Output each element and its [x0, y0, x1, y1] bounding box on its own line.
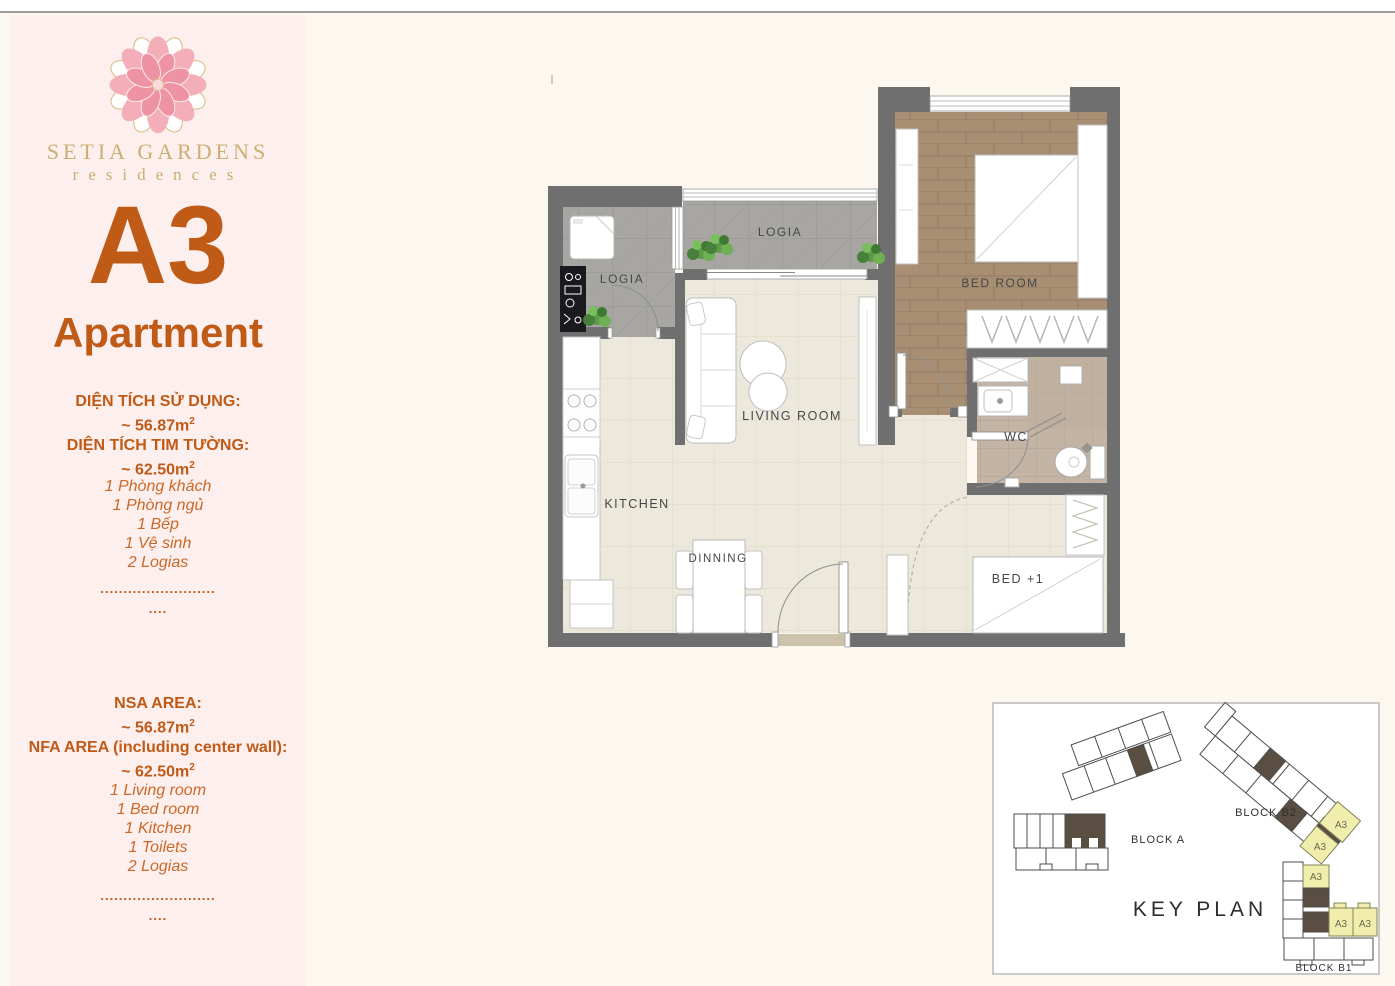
vn-feature-item: 1 Phòng khách [10, 477, 306, 496]
vn-feature-item: 1 Vệ sinh [10, 534, 306, 553]
room-label-living: LIVING ROOM [742, 409, 842, 423]
dresser-icon [896, 129, 918, 264]
en-area-value-2: ~ 62.50m2 [10, 758, 306, 782]
vn-divider-dots: ......................... [10, 581, 306, 596]
en-feature-item: 1 Living room [10, 781, 306, 800]
brand-subtitle: residences [10, 165, 306, 185]
dark-unit [1303, 912, 1329, 932]
room-label-bed-plus-one: BED +1 [992, 572, 1044, 586]
vn-area-heading-1: DIỆN TÍCH SỬ DỤNG: [10, 392, 306, 412]
vn-area-block: DIỆN TÍCH SỬ DỤNG: ~ 56.87m2 DIỆN TÍCH T… [10, 392, 306, 481]
logia-railing [683, 189, 877, 201]
vn-feature-item: 2 Logias [10, 553, 306, 572]
sliding-panel-icon [887, 555, 908, 635]
toilet-icon [1090, 446, 1105, 479]
sidebar: SETIA GARDENS residences A3 Apartment DI… [10, 15, 306, 986]
room-label-logia-top: LOGIA [758, 225, 802, 239]
top-strip [0, 0, 1395, 13]
key-plan-title: KEY PLAN [1133, 898, 1267, 921]
vn-feature-item: 1 Phòng ngủ [10, 496, 306, 515]
en-feature-item: 2 Logias [10, 857, 306, 876]
en-feature-list: 1 Living room 1 Bed room 1 Kitchen 1 Toi… [10, 781, 306, 876]
wardrobe-icon [967, 310, 1107, 348]
shower-icon [1060, 366, 1082, 384]
room-label-dinning: DINNING [688, 553, 747, 565]
entry-threshold [778, 634, 845, 646]
chair-icon [745, 595, 762, 633]
brand-logo-flower-icon [10, 27, 306, 144]
bedroom-window [930, 96, 1070, 111]
apartment-type-label: Apartment [10, 309, 306, 357]
chair-icon [745, 551, 762, 589]
dark-unit [1303, 888, 1329, 907]
unit-a3-label: A3 [1335, 820, 1348, 831]
en-area-heading-1: NSA AREA: [10, 694, 306, 714]
en-feature-item: 1 Kitchen [10, 819, 306, 838]
unit-a3-label: A3 [1359, 919, 1372, 930]
chair-icon [676, 595, 693, 633]
block-b2-label: BLOCK B2 [1235, 807, 1297, 819]
bedroom-door-leaf [897, 353, 906, 409]
vn-area-heading-2: DIỆN TÍCH TIM TƯỜNG: [10, 436, 306, 456]
unit-a3-label: A3 [1310, 872, 1323, 883]
bedside-cabinet-icon [1078, 125, 1107, 298]
stove-icon [563, 389, 600, 437]
en-area-heading-2: NFA AREA (including center wall): [10, 738, 306, 758]
dark-unit [1065, 814, 1105, 848]
vn-feature-list: 1 Phòng khách 1 Phòng ngủ 1 Bếp 1 Vệ sin… [10, 477, 306, 572]
en-area-value-1: ~ 56.87m2 [10, 714, 306, 738]
unit-a3-label: A3 [1335, 919, 1348, 930]
room-label-bedroom: BED ROOM [961, 276, 1038, 290]
block-b1-label: BLOCK B1 [1296, 963, 1353, 974]
en-area-block: NSA AREA: ~ 56.87m2 NFA AREA (including … [10, 694, 306, 783]
floor-plan: LOGIA LOGIA BED ROOM LIVING ROOM KITCHEN… [540, 60, 1150, 660]
utility-shaft-icon [560, 266, 586, 332]
room-label-wc: WC [1004, 430, 1028, 444]
vn-area-value-1: ~ 56.87m2 [10, 412, 306, 436]
en-divider-dots: ......................... [10, 888, 306, 903]
en-feature-item: 1 Toilets [10, 838, 306, 857]
block-a-label: BLOCK A [1131, 834, 1185, 846]
entry-door-leaf [839, 562, 848, 633]
en-feature-item: 1 Bed room [10, 800, 306, 819]
sliding-door [707, 269, 867, 279]
logia-glazing [672, 207, 683, 269]
room-label-kitchen: KITCHEN [604, 497, 669, 511]
en-divider-short: .... [10, 908, 306, 923]
vn-divider-short: .... [10, 601, 306, 616]
vn-feature-item: 1 Bếp [10, 515, 306, 534]
brand-name: SETIA GARDENS [10, 139, 306, 165]
unit-a3-label: A3 [1314, 842, 1327, 853]
room-label-logia-left: LOGIA [600, 272, 644, 286]
key-plan: BLOCK A BLOCK B2 A3 A3 [990, 700, 1385, 980]
apartment-code: A3 [10, 191, 306, 301]
